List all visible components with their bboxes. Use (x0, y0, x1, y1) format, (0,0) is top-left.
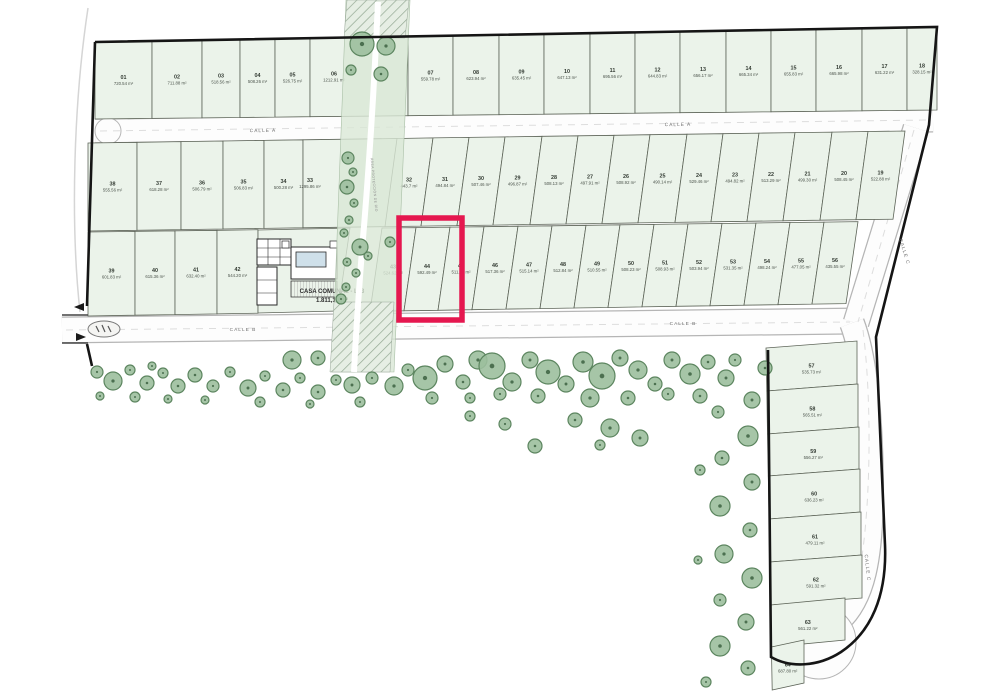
tree (522, 352, 538, 368)
tree (402, 364, 414, 376)
tree (503, 373, 521, 391)
tree (465, 411, 475, 421)
lot-area: 665.98 m² (829, 71, 849, 76)
lot-58[interactable]: 58565.51 m² (767, 384, 858, 434)
tree (158, 368, 168, 378)
lot-area: 526.75 m² (283, 79, 303, 84)
tree (125, 365, 135, 375)
lot-area: 531.35 m² (723, 265, 743, 270)
tree (352, 269, 360, 277)
lot-area: 615.36 m² (145, 274, 165, 279)
tree (343, 258, 351, 266)
tree (364, 252, 372, 260)
tree (648, 377, 662, 391)
tree (744, 474, 760, 490)
lot-12[interactable]: 12644.83 m² (635, 32, 680, 114)
tree (738, 426, 758, 446)
tree (413, 366, 437, 390)
tree (715, 545, 733, 563)
tree (148, 362, 156, 370)
lot-area: 556.27 m² (804, 455, 824, 460)
lot-area: 494.84 m² (435, 183, 455, 188)
tree (741, 661, 755, 675)
site-plan: 01720.54 m²02711.88 m²03518.56 m²04508.2… (0, 0, 1000, 700)
tree (426, 392, 438, 404)
calle-a-label-west: CALLE A (250, 128, 277, 134)
lot-area: 529.46 m² (689, 179, 709, 184)
tree (531, 389, 545, 403)
tree (693, 389, 707, 403)
tree (595, 440, 605, 450)
tree (255, 397, 265, 407)
tree (494, 388, 506, 400)
lot-area: 443.7 m² (401, 183, 419, 188)
tree (340, 229, 348, 237)
lot-area: 635.45 m² (512, 75, 532, 80)
lot-08[interactable]: 08623.94 m² (453, 35, 499, 115)
lot-57[interactable]: 57535.73 m² (766, 341, 857, 391)
lot-area: 477.05 m² (791, 264, 811, 269)
tree (171, 379, 185, 393)
lot-13[interactable]: 13656.17 m² (680, 31, 726, 113)
lot-area: 494.82 m² (725, 178, 745, 183)
lot-area: 647.13 m² (557, 75, 577, 80)
tree (336, 294, 346, 304)
lot-area: 711.88 m² (167, 80, 187, 85)
lot-area: 1212.91 m² (323, 78, 345, 83)
lot-38[interactable]: 38555.56 m² (88, 142, 137, 231)
calle-a-label-east: CALLE A (665, 122, 692, 128)
tree (225, 367, 235, 377)
lot-11[interactable]: 11695.56 m² (590, 32, 635, 113)
lot-area: 510.55 m² (587, 267, 607, 272)
tree (342, 283, 350, 291)
tree (349, 168, 357, 176)
lot-area: 695.56 m² (603, 74, 623, 79)
tree (710, 496, 730, 516)
tree (350, 199, 358, 207)
lot-07[interactable]: 07559.78 m² (408, 36, 453, 116)
lot-01[interactable]: 01720.54 m² (95, 41, 152, 119)
tree (662, 388, 674, 400)
lot-area: 518.56 m² (211, 80, 231, 85)
tree (528, 439, 542, 453)
lot-area: 535.73 m² (802, 370, 822, 375)
tree (342, 152, 354, 164)
tree (437, 356, 453, 372)
lot-14[interactable]: 14665.34 m² (726, 30, 771, 112)
tree (632, 430, 648, 446)
lot-area: 632.40 m² (186, 273, 206, 278)
tree (306, 400, 314, 408)
lot-59[interactable]: 59556.27 m² (768, 427, 860, 476)
lot-39[interactable]: 39601.83 m² (88, 231, 135, 316)
tree (758, 361, 772, 375)
lot-area: 512.84 m² (553, 268, 573, 273)
tree (695, 465, 705, 475)
tree (346, 65, 356, 75)
lot-36[interactable]: 36506.79 m² (181, 141, 223, 230)
tree (345, 216, 353, 224)
tree (621, 391, 635, 405)
lot-04[interactable]: 04508.26 m² (240, 39, 275, 118)
lot-area: 515.14 m² (519, 268, 539, 273)
lot-37[interactable]: 37618.28 m² (137, 142, 181, 231)
site-plan-svg: 01720.54 m²02711.88 m²03518.56 m²04508.2… (0, 0, 1000, 700)
lot-area: 665.34 m² (739, 72, 759, 77)
lot-15[interactable]: 15655.83 m² (771, 29, 816, 112)
tree (536, 360, 560, 384)
lot-area: 500.28 m² (274, 185, 294, 190)
tree (366, 372, 378, 384)
lot-area: 507.46 m² (471, 182, 491, 187)
lot-area: 508.45 m² (834, 177, 854, 182)
tree (240, 380, 256, 396)
lot-area: 1295.86 m² (299, 184, 321, 189)
lot-35[interactable]: 35506.83 m² (223, 140, 264, 229)
tree (743, 523, 757, 537)
lot-area: 517.36 m² (485, 269, 505, 274)
lot-03[interactable]: 03518.56 m² (202, 39, 240, 118)
tree (715, 451, 729, 465)
lot-area: 644.83 m² (648, 73, 668, 78)
lot-area: 561.22 m² (798, 626, 818, 631)
tree (377, 37, 395, 55)
lot-area: 655.83 m² (784, 72, 804, 77)
lot-area: 559.78 m² (421, 77, 441, 82)
lot-05[interactable]: 05526.75 m² (275, 38, 310, 117)
casa-comunal-building (257, 239, 337, 305)
tree (568, 413, 582, 427)
tree (311, 351, 325, 365)
lot-area: 499.30 m² (798, 177, 818, 182)
tree (276, 383, 290, 397)
lot-area: 496.87 m² (508, 182, 528, 187)
lot-41[interactable]: 41632.40 m² (175, 230, 217, 314)
lot-area: 513.29 m² (761, 178, 781, 183)
tree (350, 32, 374, 56)
tree (188, 368, 202, 382)
tree (581, 389, 599, 407)
lot-area: 555.56 m² (103, 188, 123, 193)
lot-area: 522.88 m² (871, 176, 891, 181)
lot-area: 508.93 m² (655, 266, 675, 271)
lot-area: 544.20 m² (228, 273, 248, 278)
tree (712, 406, 724, 418)
lot-area: 508.92 m² (616, 180, 636, 185)
lot-area: 656.17 m² (693, 73, 713, 78)
lot-area: 435.55 m² (825, 264, 845, 269)
lot-10[interactable]: 10647.13 m² (544, 33, 590, 114)
tree (714, 594, 726, 606)
tree (104, 372, 122, 390)
tree (680, 364, 700, 384)
tree (729, 354, 741, 366)
tree (601, 419, 619, 437)
offsite-road-edge (74, 8, 88, 312)
lot-area: 506.83 m² (234, 186, 254, 191)
lot-17[interactable]: 17631.22 m² (862, 28, 907, 111)
lot-area: 503.94 m² (689, 266, 709, 271)
tree (374, 67, 388, 81)
lot-area: 497.91 m² (580, 181, 600, 186)
tree (385, 237, 395, 247)
lot-area: 631.22 m² (875, 70, 895, 75)
tree (96, 392, 104, 400)
lot-area: 623.94 m² (466, 76, 486, 81)
tree (385, 377, 403, 395)
tree (207, 380, 219, 392)
lot-area: 591.32 m² (806, 584, 826, 589)
tree (355, 397, 365, 407)
tree (260, 371, 270, 381)
lot-area: 479.11 m² (806, 541, 826, 546)
lot-area: 565.51 m² (803, 413, 823, 418)
tree (612, 350, 628, 366)
tree (130, 392, 140, 402)
lot-61[interactable]: 61479.11 m² (769, 512, 861, 562)
tree (311, 385, 325, 399)
tree (140, 376, 154, 390)
lot-area: 508.23 m² (621, 267, 641, 272)
lot-area: 498.24 m² (757, 265, 777, 270)
lot-area: 720.54 m² (114, 81, 134, 86)
tree (499, 418, 511, 430)
lot-area: 601.83 m² (102, 275, 122, 280)
lot-62[interactable]: 62591.32 m² (770, 555, 862, 605)
tree (710, 636, 730, 656)
lot-area: 490.14 m² (653, 180, 673, 185)
tree (664, 352, 680, 368)
lot-area: 618.28 m² (149, 187, 169, 192)
tree (742, 568, 762, 588)
tree (283, 351, 301, 369)
lot-09[interactable]: 09635.45 m² (499, 34, 544, 115)
lot-42[interactable]: 42544.20 m² (217, 230, 258, 314)
lot-34[interactable]: 34500.28 m² (264, 140, 303, 229)
calle-c-label-upper: CALLE C (897, 238, 911, 266)
tree (744, 392, 760, 408)
tree (738, 614, 754, 630)
tree (718, 370, 734, 386)
tree (456, 375, 470, 389)
tree (331, 375, 341, 385)
tree (201, 396, 209, 404)
lot-area: 328.15 m² (912, 70, 932, 75)
lot-16[interactable]: 16665.98 m² (816, 28, 862, 111)
tree (344, 377, 360, 393)
tree (694, 556, 702, 564)
lot-area: 508.26 m² (248, 79, 268, 84)
tree (589, 363, 615, 389)
lot-63[interactable]: 63561.22 m² (771, 598, 845, 647)
tree (558, 376, 574, 392)
lot-40[interactable]: 40615.36 m² (135, 231, 175, 315)
lot-area: 508.13 m² (544, 181, 564, 186)
calle-b-label-east: CALLE B (670, 321, 697, 327)
lot-60[interactable]: 60636.23 m² (768, 469, 860, 519)
lot-area: 687.80 m² (778, 669, 798, 674)
calle-b-label-west: CALLE B (230, 327, 257, 333)
tree (340, 180, 354, 194)
lot-area: 506.79 m² (192, 186, 212, 191)
tree (701, 355, 715, 369)
tree (701, 677, 711, 687)
tree (629, 361, 647, 379)
strip-hatch-bottom (330, 302, 394, 372)
lot-02[interactable]: 02711.88 m² (152, 40, 202, 118)
tree (479, 353, 505, 379)
tree (91, 366, 103, 378)
lot-area: 636.23 m² (804, 498, 824, 503)
tree (465, 393, 475, 403)
tree (295, 373, 305, 383)
tree (164, 395, 172, 403)
tree (573, 352, 593, 372)
lot-area: 592.49 m² (417, 270, 437, 275)
